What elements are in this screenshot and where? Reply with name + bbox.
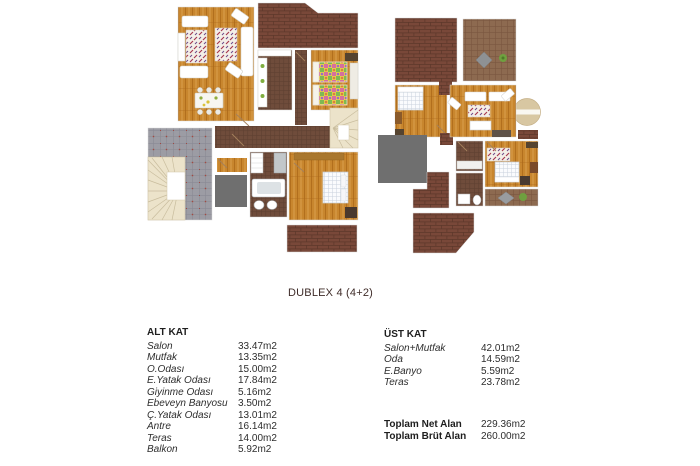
kitchen-counter — [492, 130, 511, 137]
total-label: Toplam Brüt Alan — [384, 431, 481, 443]
ust-kat-table: ÜST KAT Salon+Mutfak 42.01m2 Oda 14.59m2… — [384, 329, 520, 389]
room-area: 14.00m2 — [238, 433, 277, 445]
ust-kat-header: ÜST KAT — [384, 329, 520, 341]
area-row: Salon+Mutfak 42.01m2 — [384, 343, 520, 355]
plant — [519, 193, 527, 201]
alt-antre-corridor-vertical — [295, 50, 307, 125]
alt-balkon-terrace — [287, 225, 357, 252]
ust-round-rug — [514, 99, 541, 126]
alt-teras-gray — [148, 128, 212, 220]
room-area: 3.50m2 — [238, 398, 271, 410]
room-label: Teras — [384, 377, 481, 389]
ust-yatak-room — [485, 141, 538, 187]
alt-dining-table — [195, 87, 223, 114]
room-label: Mutfak — [147, 352, 238, 364]
room-area: 42.01m2 — [481, 343, 520, 355]
total-row: Toplam Brüt Alan 260.00m2 — [384, 431, 525, 443]
area-row: E.Banyo 5.59m2 — [384, 366, 520, 378]
room-label: Ç.Yatak Odası — [147, 410, 238, 422]
ust-banyo-room — [456, 173, 483, 206]
alt-terrace-top — [258, 3, 358, 48]
alt-banyo-room — [250, 152, 287, 217]
room-label: Giyinme Odası — [147, 387, 238, 399]
ust-teras-topleft — [395, 18, 457, 82]
room-area: 16.14m2 — [238, 421, 277, 433]
room-label: Salon+Mutfak — [384, 343, 481, 355]
room-label: Teras — [147, 433, 238, 445]
total-value: 260.00m2 — [481, 431, 525, 443]
room-area: 5.92m2 — [238, 444, 271, 456]
room-label: O.Odası — [147, 364, 238, 376]
ust-hall — [456, 141, 483, 171]
room-label: Antre — [147, 421, 238, 433]
room-area: 5.59m2 — [481, 366, 514, 378]
area-row: Teras 14.00m2 — [147, 433, 277, 445]
room-area: 14.59m2 — [481, 354, 520, 366]
room-area: 5.16m2 — [238, 387, 271, 399]
room-label: E.Banyo — [384, 366, 481, 378]
area-row: Ebeveyn Banyosu 3.50m2 — [147, 398, 277, 410]
alt-ebeveyn-yatak-room — [289, 152, 358, 220]
room-area: 23.78m2 — [481, 377, 520, 389]
alt-kat-header: ALT KAT — [147, 327, 277, 339]
room-area: 33.47m2 — [238, 341, 277, 353]
area-row: Antre 16.14m2 — [147, 421, 277, 433]
area-row: Balkon 5.92m2 — [147, 444, 277, 456]
total-row: Toplam Net Alan 229.36m2 — [384, 419, 525, 431]
area-row: Oda 14.59m2 — [384, 354, 520, 366]
alt-spiral-stair — [330, 108, 358, 148]
alt-salon-room — [178, 7, 254, 126]
alt-elevator-shaft — [215, 175, 247, 207]
alt-fan-stair — [148, 157, 185, 220]
room-area: 15.00m2 — [238, 364, 277, 376]
ust-teras-bottom — [413, 213, 474, 253]
toilet — [473, 195, 481, 205]
area-row: Ç.Yatak Odası 13.01m2 — [147, 410, 277, 422]
total-value: 229.36m2 — [481, 419, 525, 431]
area-row: Teras 23.78m2 — [384, 377, 520, 389]
total-label: Toplam Net Alan — [384, 419, 481, 431]
area-row: E.Yatak Odası 17.84m2 — [147, 375, 277, 387]
area-row: Salon 33.47m2 — [147, 341, 277, 353]
room-label: E.Yatak Odası — [147, 375, 238, 387]
sink — [458, 194, 470, 204]
room-label: Oda — [384, 354, 481, 366]
sink — [267, 201, 277, 210]
floorplan-page: DUBLEX 4 (4+2) ALT KAT Salon 33.47m2 Mut… — [0, 0, 700, 466]
ust-kat-floorplan — [375, 8, 545, 258]
area-row: Giyinme Odası 5.16m2 — [147, 387, 277, 399]
area-row: O.Odası 15.00m2 — [147, 364, 277, 376]
alt-kat-floorplan — [108, 0, 368, 256]
sink — [254, 201, 264, 210]
plan-title: DUBLEX 4 (4+2) — [288, 287, 373, 300]
ust-elevator-shaft — [378, 135, 427, 183]
room-area: 17.84m2 — [238, 375, 277, 387]
alt-mutfak-room — [258, 50, 292, 110]
room-label: Salon — [147, 341, 238, 353]
ust-teras-topright — [463, 19, 516, 81]
alt-cocuk-yatak-room — [311, 50, 358, 110]
area-row: Mutfak 13.35m2 — [147, 352, 277, 364]
ust-brick-balcony — [518, 130, 538, 139]
alt-kat-rows: Salon 33.47m2 Mutfak 13.35m2 O.Odası 15.… — [147, 341, 277, 456]
room-label: Ebeveyn Banyosu — [147, 398, 238, 410]
ust-kat-rows: Salon+Mutfak 42.01m2 Oda 14.59m2 E.Banyo… — [384, 343, 520, 389]
totals-rows: Toplam Net Alan 229.36m2 Toplam Brüt Ala… — [384, 419, 525, 442]
alt-wood-landing — [217, 158, 247, 172]
room-area: 13.01m2 — [238, 410, 277, 422]
alt-kat-table: ALT KAT Salon 33.47m2 Mutfak 13.35m2 O.O… — [147, 327, 277, 456]
room-area: 13.35m2 — [238, 352, 277, 364]
totals-table: Toplam Net Alan 229.36m2 Toplam Brüt Ala… — [384, 419, 525, 442]
room-label: Balkon — [147, 444, 238, 456]
ust-salon-mutfak-room — [448, 85, 516, 137]
ust-teras-bottomright — [485, 189, 538, 206]
